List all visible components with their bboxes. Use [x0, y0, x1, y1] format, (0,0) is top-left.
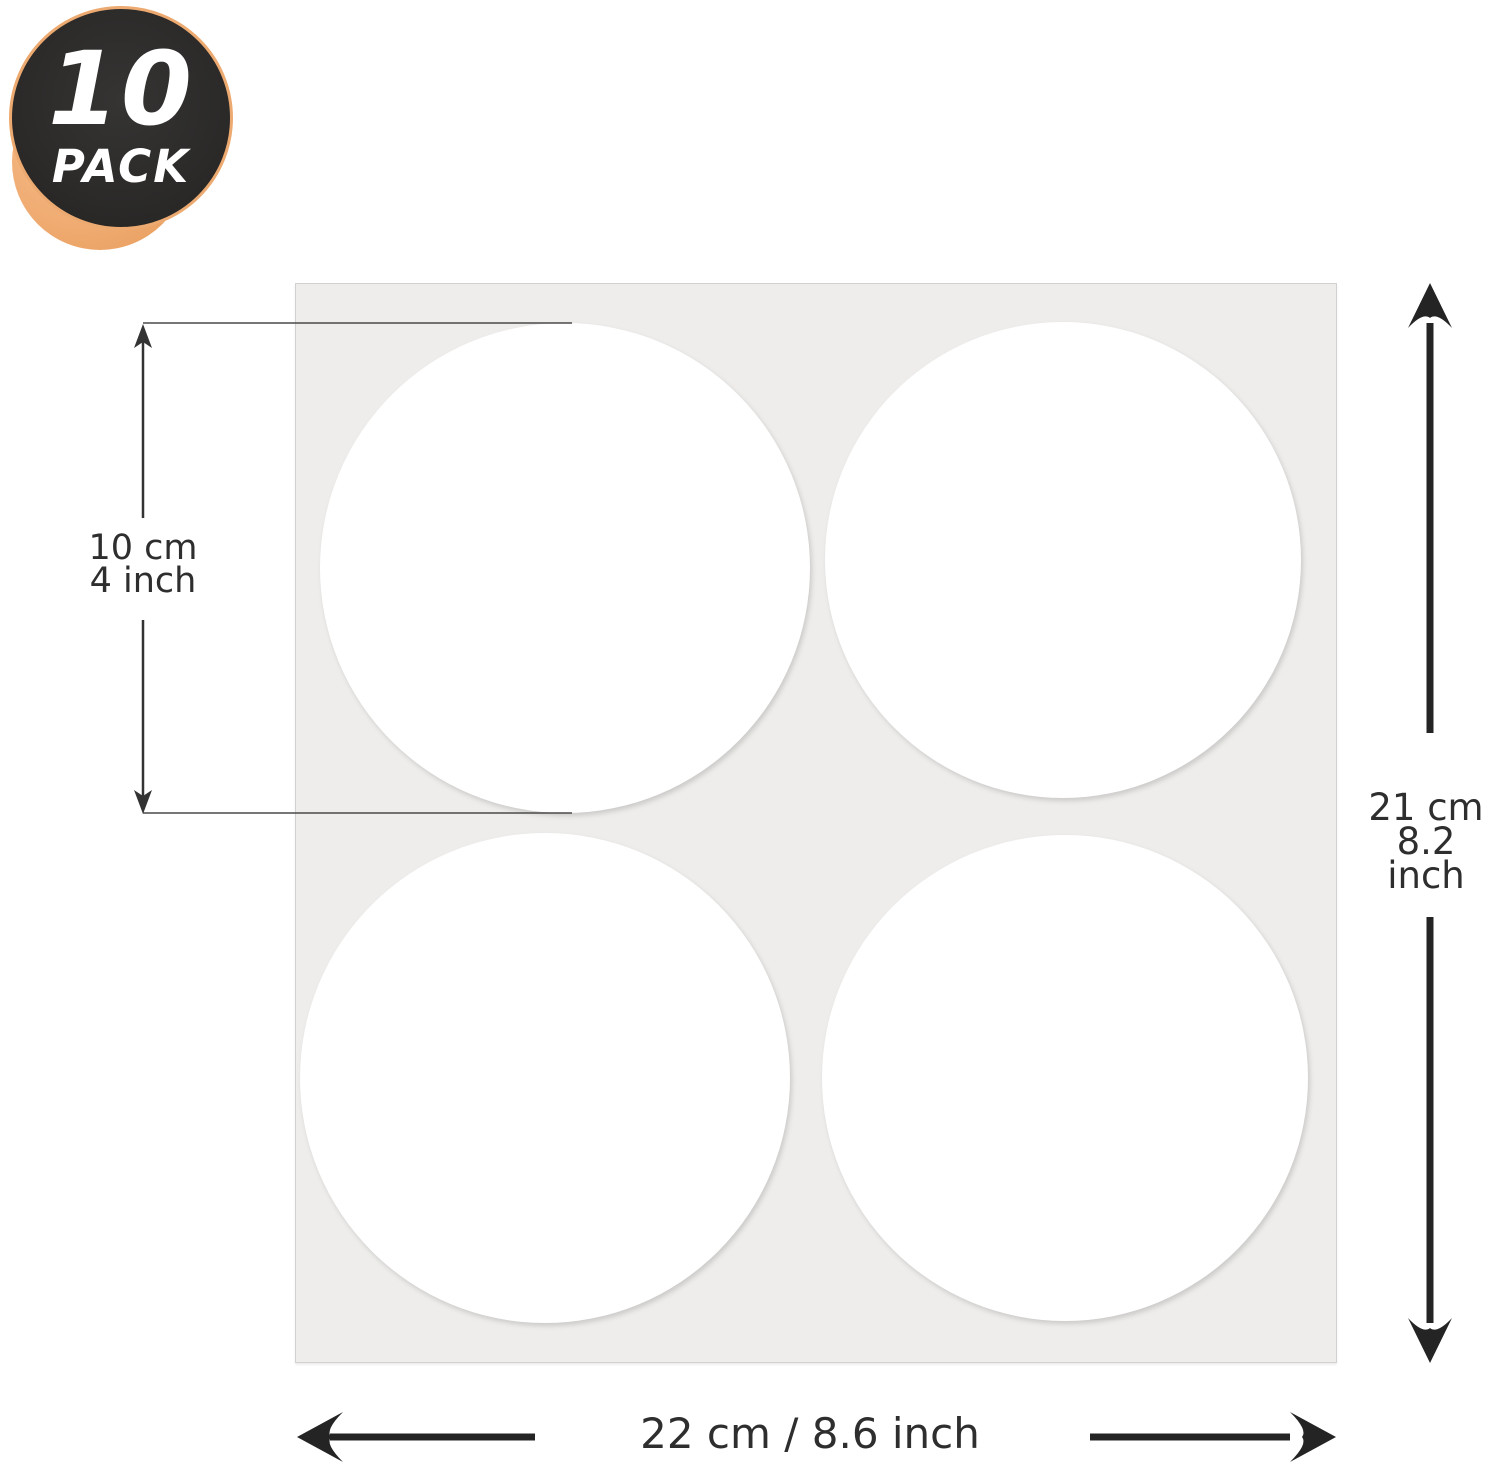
sheet-width-label: 22 cm / 8.6 inch — [560, 1412, 1060, 1456]
sticker-circle-bottom-right — [822, 835, 1308, 1321]
pack-badge: 10 PACK — [0, 0, 260, 260]
down-arrow-icon — [1408, 1318, 1452, 1363]
diameter-inch-text: 4 inch — [43, 565, 243, 598]
product-dimension-image: 10 PACK 10 cm 4 inch 21 cm 8.2 inch — [0, 0, 1500, 1462]
right-arrow-icon — [1290, 1412, 1336, 1462]
badge-label: PACK — [52, 140, 190, 193]
sticker-circle-top-right — [825, 322, 1301, 798]
badge-disc: 10 PACK — [9, 6, 233, 230]
circle-diameter-label: 10 cm 4 inch — [43, 532, 243, 598]
height-inch-text: 8.2 inch — [1352, 825, 1500, 893]
sheet-height-label: 21 cm 8.2 inch — [1352, 791, 1500, 893]
sheet-width-dimension-right — [1075, 1405, 1345, 1462]
sticker-circle-bottom-left — [300, 833, 790, 1323]
up-arrow-icon — [1408, 283, 1452, 328]
sheet-width-dimension-left — [280, 1405, 550, 1462]
badge-count: 10 — [48, 43, 194, 137]
